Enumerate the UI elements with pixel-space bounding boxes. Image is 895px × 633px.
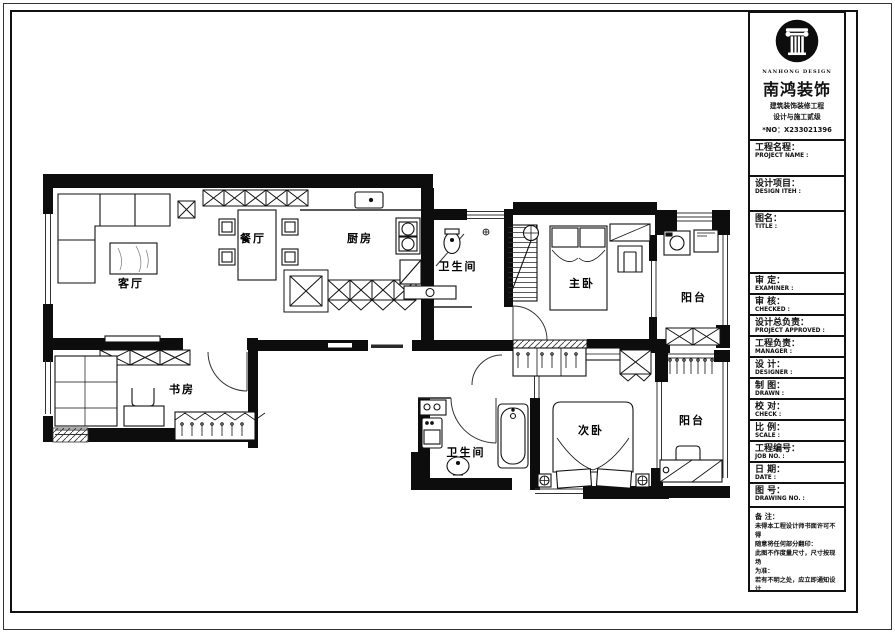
pillow [552, 228, 578, 247]
notes-title: 备 注： [755, 512, 839, 522]
tv-console [105, 336, 160, 342]
pillow [556, 469, 591, 488]
tatami [55, 356, 117, 426]
field-drawing-no-label-zh: 图 号： [755, 486, 839, 496]
study-door [208, 352, 247, 391]
field-job-no-label-zh: 工程编号： [755, 444, 839, 454]
field-design-item-label-en: DESIGN ITEH : [755, 189, 839, 196]
note-line-2: 此图不作度量尺寸，尺寸按现场 [755, 550, 839, 568]
field-job-no: 工程编号：JOB NO. : [750, 442, 844, 463]
field-manager-label-en: MANAGER : [755, 349, 839, 356]
field-design-item-label-zh: 设计项目： [755, 179, 839, 189]
wardrobe [513, 348, 586, 376]
title-block: NANHONG DESIGN 南鸿装饰 建筑装饰装修工程 设计与施工贰级 *NO… [748, 11, 846, 592]
window-hatch [53, 428, 88, 442]
company-header: NANHONG DESIGN 南鸿装饰 建筑装饰装修工程 设计与施工贰级 *NO… [750, 13, 844, 141]
field-project-approved-label-en: PROJECT APPROVED : [755, 328, 839, 335]
field-scale-label-en: SCALE : [755, 433, 839, 440]
field-project-approved-label-zh: 设计总负责： [755, 318, 839, 328]
sprinkler-symbols [538, 474, 649, 487]
company-cert-no: *NO：X233021396 [750, 124, 844, 134]
master-bottom-wall [513, 340, 587, 348]
room-label-balcony-upper: 阳台 [681, 289, 707, 305]
study-chair [132, 388, 154, 406]
field-designer-label-zh: 设 计： [755, 360, 839, 370]
room-label-living-room: 客厅 [118, 275, 144, 291]
field-drawn-label-zh: 制 图： [755, 381, 839, 391]
field-check-label-zh: 校 对： [755, 402, 839, 412]
stove [396, 218, 420, 254]
field-checked-label-en: CHECKED : [755, 307, 839, 314]
entry-threshold [371, 345, 403, 349]
company-cert-line2: 设计与施工贰级 [750, 113, 844, 122]
field-date-label-zh: 日 期： [755, 465, 839, 475]
desk-u [618, 246, 642, 272]
room-label-bathroom-lower: 卫生间 [447, 444, 486, 460]
study-desk [124, 406, 164, 426]
storage-cabinet [660, 460, 722, 482]
field-check-label-en: CHECK : [755, 412, 839, 419]
room-label-master-bedroom: 主卧 [569, 275, 595, 291]
study-furniture [55, 356, 265, 440]
note-line-1: 随意将任何部分翻印： [755, 541, 839, 550]
field-project-name: 工程名程：PROJECT NAME : [750, 141, 844, 177]
pillow [580, 228, 605, 247]
field-project-name-label-en: PROJECT NAME : [755, 153, 839, 160]
dining-cabinet-row [203, 190, 308, 206]
field-examiner-label-zh: 审 定： [755, 276, 839, 286]
hall-cabinet [284, 270, 328, 312]
field-designer-label-en: DESIGNER : [755, 370, 839, 377]
field-check: 校 对：CHECK : [750, 400, 844, 421]
drawing-sheet: 客厅餐厅厨房卫生间主卧阳台书房卫生间次卧阳台 NANHONG DESIGN 南鸿… [0, 0, 895, 633]
field-title-label-zh: 图名： [755, 214, 839, 224]
field-manager-label-zh: 工程负责： [755, 339, 839, 349]
balcony-upper-fixtures [664, 230, 718, 255]
drying-rack [669, 359, 713, 374]
balcony-upper-cabinet [666, 328, 720, 345]
master-bedroom-furniture [524, 224, 651, 310]
title-block-fields: 工程名程：PROJECT NAME :设计项目：DESIGN ITEH :图名：… [750, 141, 844, 508]
basin [426, 289, 434, 297]
field-scale-label-zh: 比 例： [755, 423, 839, 433]
master-door [513, 306, 547, 340]
pillow [596, 469, 631, 488]
field-drawing-no: 图 号：DRAWING NO. : [750, 484, 844, 508]
field-drawn-label-en: DRAWN : [755, 391, 839, 398]
field-manager: 工程负责：MANAGER : [750, 337, 844, 358]
toilet [444, 233, 460, 254]
study-wardrobe [175, 412, 265, 440]
room-label-dining-room: 餐厅 [240, 230, 266, 246]
living-room-furniture [58, 194, 170, 342]
field-checked: 审 核：CHECKED : [750, 295, 844, 316]
notes-lines: 未得本工程设计师书面许可不得随意将任何部分翻印：此图不作度量尺寸，尺寸按现场为准… [755, 523, 839, 590]
room-label-balcony-lower: 阳台 [679, 412, 705, 428]
field-date: 日 期：DATE : [750, 463, 844, 484]
room-label-study: 书房 [169, 381, 195, 397]
field-drawn: 制 图：DRAWN : [750, 379, 844, 400]
field-job-no-label-en: JOB NO. : [755, 454, 839, 461]
field-title-label-en: TITLE : [755, 224, 839, 231]
field-scale: 比 例：SCALE : [750, 421, 844, 442]
field-drawing-no-label-en: DRAWING NO. : [755, 496, 839, 503]
company-logo-caption: NANHONG DESIGN [750, 69, 844, 75]
wall-slot [328, 343, 352, 348]
room-label-bathroom-upper: 卫生间 [439, 258, 478, 274]
field-examiner: 审 定：EXAMINER : [750, 274, 844, 295]
title-block-notes: 备 注： 未得本工程设计师书面许可不得随意将任何部分翻印：此图不作度量尺寸，尺寸… [750, 508, 844, 590]
note-line-4: 若有不明之处，应立即通知设计 [755, 577, 839, 590]
company-name: 南鸿装饰 [750, 76, 844, 100]
company-cert-line1: 建筑装饰装修工程 [750, 102, 844, 111]
field-project-approved: 设计总负责：PROJECT APPROVED : [750, 316, 844, 337]
field-checked-label-zh: 审 核： [755, 297, 839, 307]
field-examiner-label-en: EXAMINER : [755, 286, 839, 293]
note-line-0: 未得本工程设计师书面许可不得 [755, 523, 839, 541]
note-line-3: 为准： [755, 568, 839, 577]
bathtub [498, 404, 528, 468]
field-date-label-en: DATE : [755, 475, 839, 482]
coffee-table [110, 243, 157, 274]
field-project-name-label-zh: 工程名程： [755, 143, 839, 153]
room-label-second-bedroom: 次卧 [578, 422, 604, 438]
field-design-item: 设计项目：DESIGN ITEH : [750, 177, 844, 212]
company-logo-icon [774, 18, 820, 64]
second-bedroom-door [472, 355, 502, 385]
second-bedroom-cabinet [620, 350, 651, 381]
room-label-kitchen: 厨房 [347, 230, 373, 246]
field-title: 图名：TITLE : [750, 212, 844, 274]
bathroom-lower-door [451, 398, 496, 443]
field-designer: 设 计：DESIGNER : [750, 358, 844, 379]
